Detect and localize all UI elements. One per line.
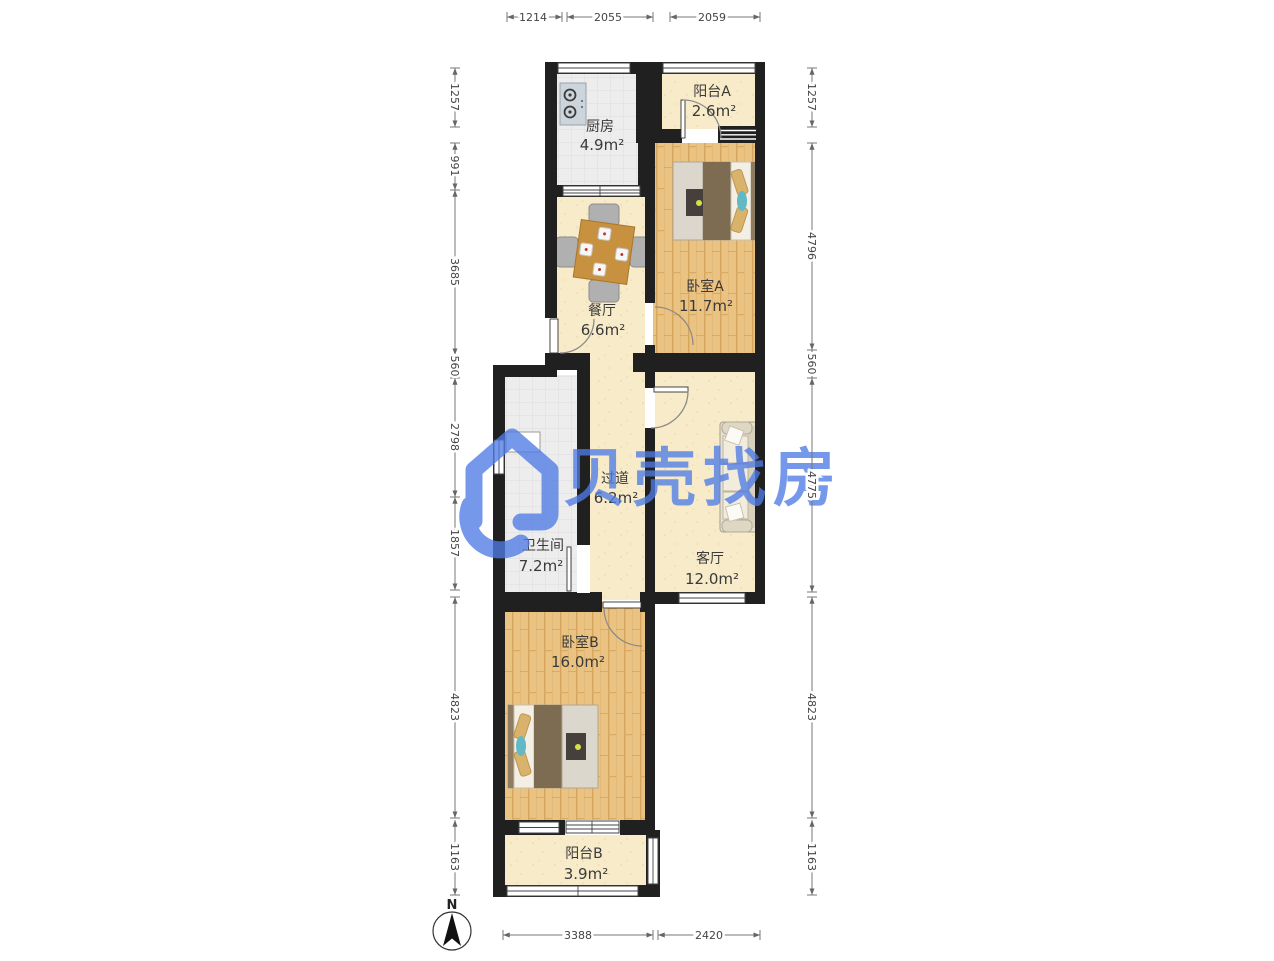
dim-left-1: 991 bbox=[448, 156, 461, 177]
bathroom-door bbox=[567, 547, 571, 591]
railing-balcony-a bbox=[718, 126, 758, 143]
label-balcony-a-name: 阳台A bbox=[693, 84, 731, 100]
dim-left-6: 4823 bbox=[448, 693, 461, 721]
dim-right-4: 4823 bbox=[805, 693, 818, 721]
dim-right-3: 4775 bbox=[805, 471, 818, 499]
label-living-name: 客厅 bbox=[696, 550, 724, 567]
window-balcony-b-right bbox=[648, 838, 658, 884]
label-kitchen-name: 厨房 bbox=[586, 119, 614, 135]
dim-left-7: 1163 bbox=[448, 843, 461, 871]
label-dining-area: 6.6m² bbox=[581, 321, 625, 339]
label-bedroom-b-area: 16.0m² bbox=[551, 653, 605, 671]
dim-right-2: 560 bbox=[805, 354, 818, 375]
label-kitchen-area: 4.9m² bbox=[580, 136, 624, 154]
window-balcony-a-top bbox=[663, 63, 755, 73]
label-bedroom-a-area: 11.7m² bbox=[679, 297, 733, 315]
label-bedroom-a-name: 卧室A bbox=[686, 278, 724, 295]
dim-top-0: 1214 bbox=[519, 11, 547, 24]
dim-right-5: 1163 bbox=[805, 843, 818, 871]
label-bedroom-b-name: 卧室B bbox=[561, 634, 599, 651]
dim-left-4: 2798 bbox=[448, 423, 461, 451]
window-balcony-b-bottom bbox=[507, 886, 638, 896]
label-dining-name: 餐厅 bbox=[588, 303, 616, 319]
label-balcony-b-area: 3.9m² bbox=[564, 865, 608, 883]
dim-left-3: 560 bbox=[448, 356, 461, 377]
bed-a bbox=[673, 162, 757, 240]
dim-top-2: 2059 bbox=[698, 11, 726, 24]
slider-kitchen bbox=[563, 186, 640, 196]
dim-right-0: 1257 bbox=[805, 83, 818, 111]
dim-left-2: 3685 bbox=[448, 258, 461, 286]
dim-right-1: 4796 bbox=[805, 232, 818, 260]
dim-left-0: 1257 bbox=[448, 83, 461, 111]
dim-bottom-0: 3388 bbox=[564, 929, 592, 942]
compass-needle-icon bbox=[443, 913, 461, 946]
compass-north-label: N bbox=[447, 898, 458, 913]
label-balcony-b-name: 阳台B bbox=[565, 846, 603, 862]
slider-balcony-b bbox=[566, 821, 619, 833]
watermark-text: 贝壳找房 bbox=[563, 442, 843, 515]
dim-left-5: 1857 bbox=[448, 529, 461, 557]
bathroom-door-gap bbox=[577, 545, 590, 593]
window-bedroom-b-bottom bbox=[519, 822, 559, 833]
label-bathroom-area: 7.2m² bbox=[519, 557, 563, 575]
dim-bottom-1: 2420 bbox=[695, 929, 723, 942]
balcony-a-door-gap bbox=[682, 129, 722, 143]
stove bbox=[560, 83, 586, 125]
dim-top-1: 2055 bbox=[594, 11, 622, 24]
bed-b bbox=[508, 705, 598, 788]
window-kitchen-top bbox=[558, 63, 630, 73]
label-living-area: 12.0m² bbox=[685, 570, 739, 588]
floorplan-canvas: 厨房 4.9m² 阳台A 2.6m² 卧室A 11.7m² 餐厅 6.6m² 过… bbox=[0, 0, 1274, 961]
window-living-bottom bbox=[679, 593, 745, 603]
floor-balcony-a bbox=[660, 72, 757, 129]
compass: N bbox=[433, 898, 471, 950]
label-balcony-a-area: 2.6m² bbox=[692, 102, 736, 120]
